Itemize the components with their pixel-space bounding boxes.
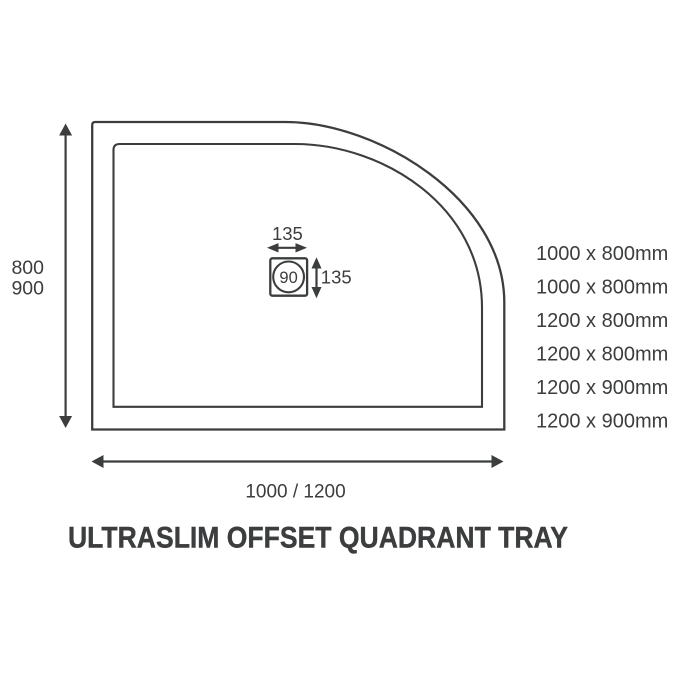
svg-text:ULTRASLIM OFFSET QUADRANT TRAY: ULTRASLIM OFFSET QUADRANT TRAY [68,522,568,555]
svg-text:135: 135 [272,223,303,244]
svg-text:1000 x 800mm: 1000 x 800mm [536,277,668,299]
svg-text:1200 x 900mm: 1200 x 900mm [536,411,668,433]
svg-text:1200 x 900mm: 1200 x 900mm [536,377,668,399]
svg-text:1200 x 800mm: 1200 x 800mm [536,344,668,366]
svg-text:1000 / 1200: 1000 / 1200 [245,482,345,503]
svg-text:1200 x 800mm: 1200 x 800mm [536,310,668,332]
svg-text:900: 900 [11,278,44,300]
svg-text:90: 90 [279,269,297,287]
svg-text:1000 x 800mm: 1000 x 800mm [536,243,668,265]
svg-text:800: 800 [11,257,44,279]
svg-text:135: 135 [321,267,352,288]
